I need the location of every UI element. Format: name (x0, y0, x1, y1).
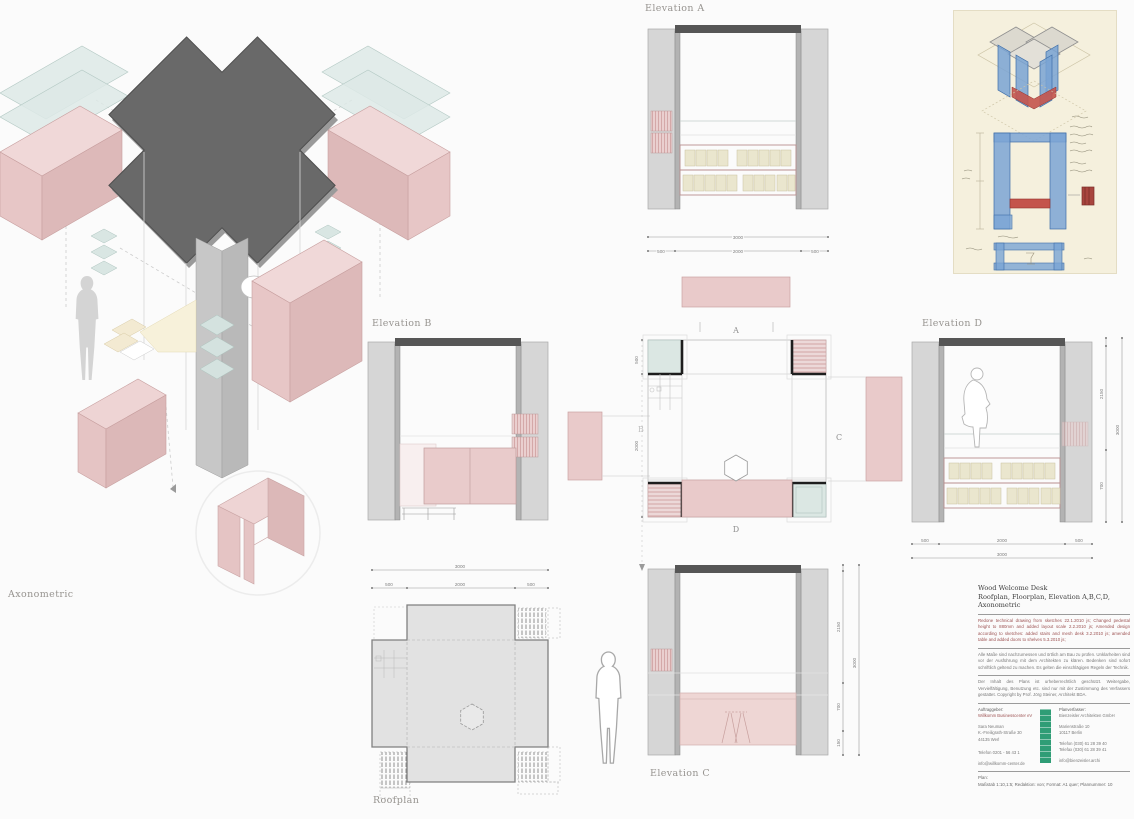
elevation-d-label: Elevation D (922, 318, 982, 329)
plan-marker-a: A (732, 326, 739, 335)
sheet-title-line1: Wood Welcome Desk (978, 584, 1130, 593)
detail-desk (218, 478, 304, 584)
dim-label: 700 (836, 703, 841, 711)
column-bl (648, 483, 682, 517)
hand-sketch (954, 11, 1116, 273)
divider (978, 703, 1130, 704)
drawing-sheet: Axonometric Elevation A (0, 0, 1134, 819)
plan-marker-d: D (733, 525, 739, 534)
detached-panel (568, 412, 602, 480)
dim-label: 3000 (733, 235, 744, 240)
architect-logo (1040, 709, 1051, 763)
architect-web: info@bienzeisler.archi (1059, 758, 1130, 765)
dim-label: 500 (1075, 538, 1083, 543)
desk-top-panel (682, 277, 790, 307)
pink-hatch-block (651, 649, 672, 671)
person-silhouette (76, 276, 99, 380)
dim-label: 3000 (997, 552, 1008, 557)
divider (978, 648, 1130, 649)
column-tl (648, 340, 682, 374)
shelf-panels-centre (200, 315, 234, 379)
dim-label: 3000 (1115, 424, 1120, 435)
column-br (792, 483, 826, 517)
column-tr (792, 340, 826, 374)
dim-label: 2000 (455, 582, 466, 587)
standing-person (596, 652, 621, 763)
title-block: Wood Welcome Desk Roofplan, Floorplan, E… (978, 584, 1130, 789)
bench-lines (402, 508, 456, 520)
stool-hexagon (725, 455, 748, 481)
elevation-a-label: Elevation A (645, 3, 705, 14)
dim-label: 3000 (455, 564, 466, 569)
dim-label: 2000 (733, 249, 744, 254)
elevation-c-right-dims (842, 564, 860, 756)
dim-label: 500 (811, 249, 819, 254)
stair-detail (648, 374, 682, 410)
plan-info: Maßstab 1:10,1:5; Redaktion: von; Format… (978, 782, 1130, 789)
shelf-unit (944, 458, 1060, 508)
axonometric-view (0, 0, 460, 620)
elevation-b-label: Elevation B (372, 318, 432, 329)
lower-left-desk (78, 379, 166, 488)
elevation-d-right-dims (1105, 337, 1123, 523)
hand-sketch-panel (953, 10, 1117, 274)
axonometric-label: Axonometric (8, 589, 74, 600)
sheet-title-line2: Roofplan, Floorplan, Elevation A,B,C,D, (978, 593, 1130, 602)
floorplan-view: A 500 2000 B C D (630, 270, 915, 582)
sheet-title-line3: Axonometric (978, 601, 1130, 610)
desk-plan (682, 480, 792, 517)
elevation-c-label: Elevation C (650, 768, 710, 779)
dim-label: 2000 (997, 538, 1008, 543)
client-email: info@willkomm-center.de (978, 761, 1040, 768)
divider (978, 675, 1130, 676)
plan-marker-b: B (638, 425, 644, 434)
dim-label: 2150 (1099, 388, 1104, 399)
floor-panel (140, 300, 196, 352)
plan-label: Plan: (978, 775, 1130, 782)
dim-label: 2000 (634, 440, 639, 451)
centre-columns (196, 238, 248, 478)
copyright-notes: Der Inhalt des Plans ist urheberrechtlic… (978, 679, 1130, 699)
roofplan-view: 3000 500 2000 500 (360, 558, 640, 814)
shelf-unit (680, 145, 796, 195)
pink-hatch-block (1062, 422, 1088, 446)
glass-doodle (1026, 253, 1035, 264)
roofplan-label: Roofplan (373, 795, 419, 806)
roof-bar (675, 25, 801, 33)
lower-right-cabinet (252, 240, 362, 402)
elevation-c-view: 2150 700 150 3000 (645, 563, 875, 763)
elevation-a-view: 3000 500 2000 500 (645, 23, 835, 265)
revision-notes: Redone technical drawing from sketches 2… (978, 618, 1130, 644)
sketch-red-swatch (1068, 187, 1094, 205)
dim-label: 3000 (852, 657, 857, 668)
contact-block: Auftraggeber: Willkomm Businesscenter eV… (978, 707, 1130, 768)
dim-label: 500 (527, 582, 535, 587)
client-name: Willkomm Businesscenter eV (978, 713, 1040, 720)
sketch-section (994, 243, 1064, 270)
desk-side-panel (866, 377, 902, 481)
seated-person (962, 368, 990, 447)
dim-label: 700 (1099, 482, 1104, 490)
elevation-d-view: 500 2000 500 3000 2150 700 3000 (910, 330, 1134, 578)
sketch-elevation (976, 133, 1066, 229)
dim-label: 2150 (836, 621, 841, 632)
divider (978, 614, 1130, 615)
dim-label: 500 (657, 249, 665, 254)
shelf-panels-left (91, 229, 117, 275)
general-notes: Alle Maße sind nachzumessen und örtlich … (978, 652, 1130, 672)
dim-label: 500 (385, 582, 393, 587)
plan-marker-c: C (836, 433, 842, 442)
dim-label: 150 (836, 739, 841, 747)
desk-front (680, 693, 796, 745)
divider (978, 771, 1130, 772)
elevation-b-view (366, 336, 656, 526)
dim-label: 500 (634, 356, 639, 364)
dim-label: 500 (921, 538, 929, 543)
